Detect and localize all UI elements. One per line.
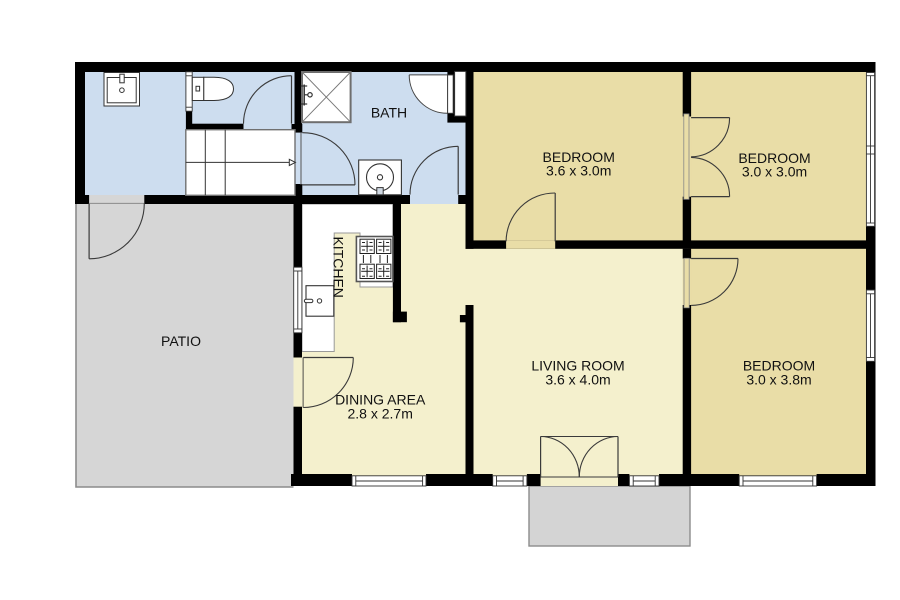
svg-text:KITCHEN: KITCHEN (331, 236, 347, 297)
svg-text:3.0 x 3.8m: 3.0 x 3.8m (746, 372, 811, 388)
svg-text:2.8 x 2.7m: 2.8 x 2.7m (348, 406, 413, 422)
svg-text:3.6 x 3.0m: 3.6 x 3.0m (546, 162, 611, 178)
svg-text:BATH: BATH (371, 104, 407, 120)
svg-text:PATIO: PATIO (161, 333, 201, 349)
svg-text:3.0 x 3.0m: 3.0 x 3.0m (742, 164, 807, 180)
svg-text:3.6 x 4.0m: 3.6 x 4.0m (545, 372, 610, 388)
